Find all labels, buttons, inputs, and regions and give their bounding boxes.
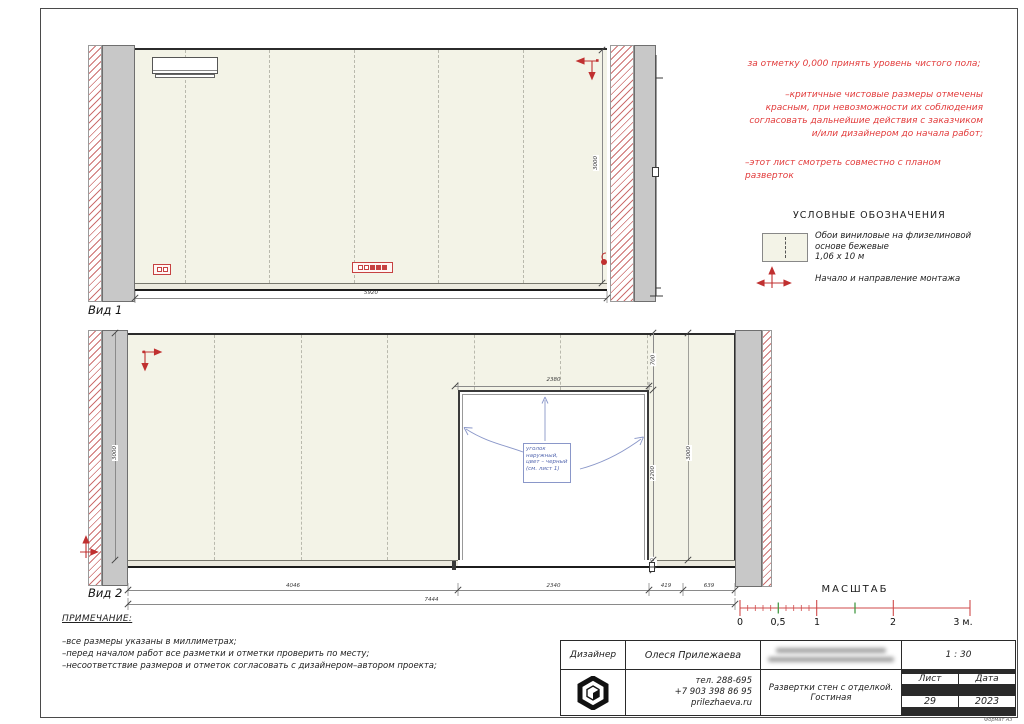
floor-line (455, 566, 660, 569)
wallpaper-seam (269, 50, 270, 283)
view1-label: Вид 1 (88, 303, 122, 317)
scale-label: 3 м. (953, 617, 972, 628)
note-line: –несоответствие размеров и отметок согла… (62, 660, 437, 672)
view2-dimline-row1 (128, 590, 735, 591)
view1-column-left (102, 45, 135, 302)
project-name-blurred (761, 641, 901, 669)
red-note-line: за отметку 0,000 принять уровень чистого… (745, 58, 983, 71)
format-label: Формат А3 (984, 717, 1012, 723)
sheet-date-cell: Лист Дата 29 2023 (902, 670, 1015, 715)
title-block: Дизайнер Олеся Прилежаева 1 : 30 тел. 28… (560, 640, 1016, 716)
view2-hatch-left (88, 330, 102, 586)
view1-height-dim: 3000 (593, 155, 599, 171)
view2-height-right-dim: 3000 (686, 445, 692, 461)
phone-line: тел. 288-695 (695, 676, 752, 687)
view2-height-left-dim: 3000 (112, 445, 118, 461)
outlet-group (352, 262, 393, 273)
drawing-sheet: 3000 5920 Вид 1 уголок наружный, цвет – … (0, 0, 1024, 724)
wallpaper-swatch (762, 233, 808, 262)
wallpaper-name: Обои виниловые на флизелиновой основе бе… (815, 231, 983, 252)
view1-height-dimline (602, 50, 603, 283)
wallpaper-seam (438, 50, 439, 283)
view2-dimline-row2 (128, 604, 735, 605)
door-width-dim: 2380 (458, 377, 649, 383)
designer-name: Олеся Прилежаева (626, 641, 760, 669)
outlet-double (153, 264, 171, 275)
notes-title: ПРИМЕЧАНИЕ: (62, 614, 132, 624)
scalebar-title: МАСШТАБ (740, 584, 970, 595)
legend-title: УСЛОВНЫЕ ОБОЗНАЧЕНИЯ (793, 210, 946, 221)
view1-wall (135, 48, 607, 283)
view1-width-dim: 5920 (135, 290, 607, 296)
date-label: Дата (959, 674, 1015, 684)
scale-value: 1 : 30 (902, 641, 1015, 669)
website: prilezhaeva.ru (691, 698, 752, 709)
designer-label: Дизайнер (561, 641, 625, 669)
drawing-title: Развертки стен с отделкой. Гостиная (761, 670, 901, 715)
sheet-label: Лист (902, 674, 958, 684)
view2-baseboard-right (657, 560, 735, 568)
scale-label: 2 (890, 617, 896, 628)
segment-dim: 419 (649, 583, 683, 589)
wallpaper-seam (387, 335, 388, 560)
ac-unit (152, 57, 218, 74)
notes-block: –все размеры указаны в миллиметрах; –пер… (62, 636, 437, 672)
segment-dim: 2340 (458, 583, 649, 589)
view2-total-dim: 7444 (128, 597, 735, 603)
phone-line: +7 903 398 86 95 (675, 687, 752, 698)
door-height-dim: 2200 (650, 465, 656, 481)
wallpaper-seam (214, 335, 215, 560)
logo-cell (561, 670, 625, 715)
sheet-number: 29 (902, 696, 958, 707)
red-note-line: –критичные чистовые размеры отмечены кра… (745, 89, 983, 141)
corner-trim-callout: уголок наружный, цвет – черный (см. лист… (523, 443, 571, 483)
wallpaper-size: 1,06 х 10 м (815, 252, 983, 263)
view2-hatch-right (762, 330, 772, 587)
blurred-text-bar (776, 648, 885, 653)
view2-baseboard-left (128, 560, 458, 568)
wallpaper-seam (354, 50, 355, 283)
scale-label: 0,5 (770, 617, 785, 628)
blurred-text-bar (768, 657, 894, 662)
view2-label: Вид 2 (88, 586, 122, 600)
segment-dim: 4046 (128, 583, 458, 589)
view1-column-right (634, 45, 656, 302)
wallpaper-seam (523, 50, 524, 283)
date-value: 2023 (959, 696, 1015, 707)
door-side-dimline (653, 333, 654, 570)
red-note-line: –этот лист смотреть совместно с планом р… (745, 157, 983, 183)
contacts-cell: тел. 288-695 +7 903 398 86 95 prilezhaev… (626, 670, 760, 715)
view2-column-right (735, 330, 762, 587)
above-door-dim: 700 (650, 354, 656, 367)
swatch-seam (785, 237, 786, 258)
note-line: –все размеры указаны в миллиметрах; (62, 636, 437, 648)
red-notes-block: за отметку 0,000 принять уровень чистого… (745, 58, 983, 196)
wallpaper-legend-text: Обои виниловые на флизелиновой основе бе… (815, 231, 983, 263)
view1-hatch-left (88, 45, 102, 302)
view1-hatch-right (610, 45, 634, 302)
montage-legend-text: Начало и направление монтажа (815, 274, 995, 284)
segment-dim: 639 (683, 583, 735, 589)
scale-label: 0 (737, 617, 743, 628)
wallpaper-seam (185, 50, 186, 283)
door-width-dimline (455, 386, 652, 387)
ac-unit-tray (155, 74, 215, 78)
note-line: –перед началом работ все разметки и отме… (62, 648, 437, 660)
scale-label: 1 (814, 617, 820, 628)
view1-width-dimline (135, 298, 607, 299)
designer-logo-icon (576, 676, 610, 710)
wallpaper-seam (301, 335, 302, 560)
